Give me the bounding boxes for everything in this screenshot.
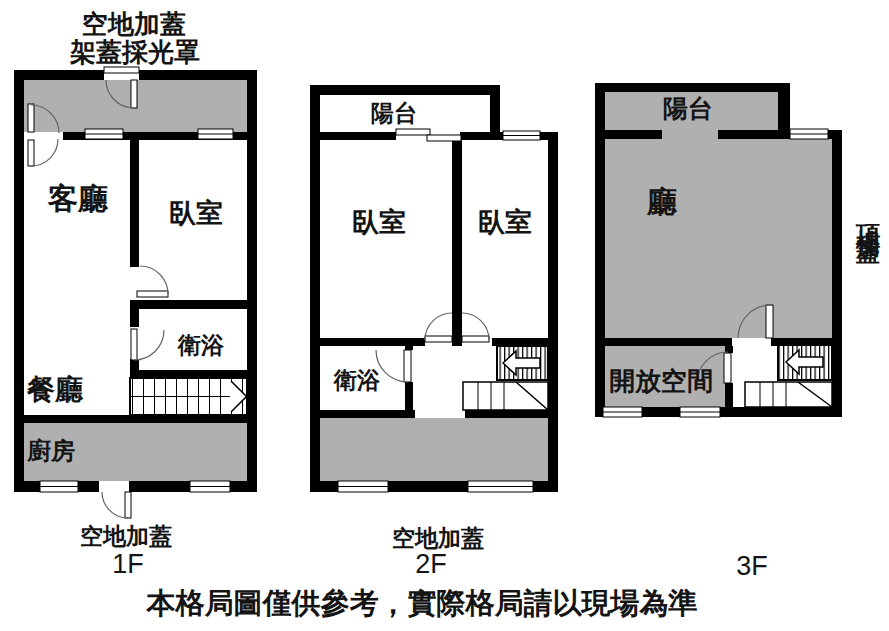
floor3-label: 3F — [736, 553, 768, 580]
floor3-room-open-space: 開放空間 — [609, 368, 713, 394]
floor3-room-hall: 廳 — [647, 187, 677, 217]
floor1-top-note-line2: 架蓋採光罩 — [70, 39, 200, 65]
floor1-room-kitchen: 廚房 — [27, 439, 75, 463]
floor2-doors — [376, 313, 489, 382]
floor1-top-note-line1: 空地加蓋 — [82, 11, 186, 37]
floor1-bottom-note: 空地加蓋 — [80, 525, 172, 548]
floor2-room-balcony: 陽台 — [371, 102, 417, 125]
disclaimer-text: 本格局圖僅供參考，實際格局請以現場為準 — [147, 589, 698, 618]
floor1-room-bath: 衛浴 — [178, 334, 224, 357]
floor1-room-living: 客廳 — [48, 184, 108, 214]
floor3-side-note: 頂樓加蓋 — [856, 205, 880, 225]
floor-plan-page: 空地加蓋 架蓋採光罩 客廳 臥室 衛浴 餐廳 廚房 空地加蓋 1F 陽台 臥室 … — [0, 0, 889, 631]
floor2-plan — [310, 85, 558, 492]
floor1-label: 1F — [112, 551, 144, 578]
floor2-label: 2F — [415, 551, 447, 578]
floor2-addition-areas — [320, 418, 548, 482]
floor2-bottom-note: 空地加蓋 — [392, 527, 484, 550]
floor2-room-bedroom-right: 臥室 — [478, 209, 532, 236]
floor1-room-bedroom: 臥室 — [169, 200, 223, 227]
floor3-room-balcony: 陽台 — [663, 96, 713, 121]
floor2-staircase — [463, 346, 548, 410]
floor1-staircase — [130, 378, 247, 415]
floor2-room-bath: 衛浴 — [334, 369, 380, 392]
floor1-room-dining: 餐廳 — [27, 376, 83, 404]
floor2-room-bedroom-left: 臥室 — [352, 209, 406, 236]
